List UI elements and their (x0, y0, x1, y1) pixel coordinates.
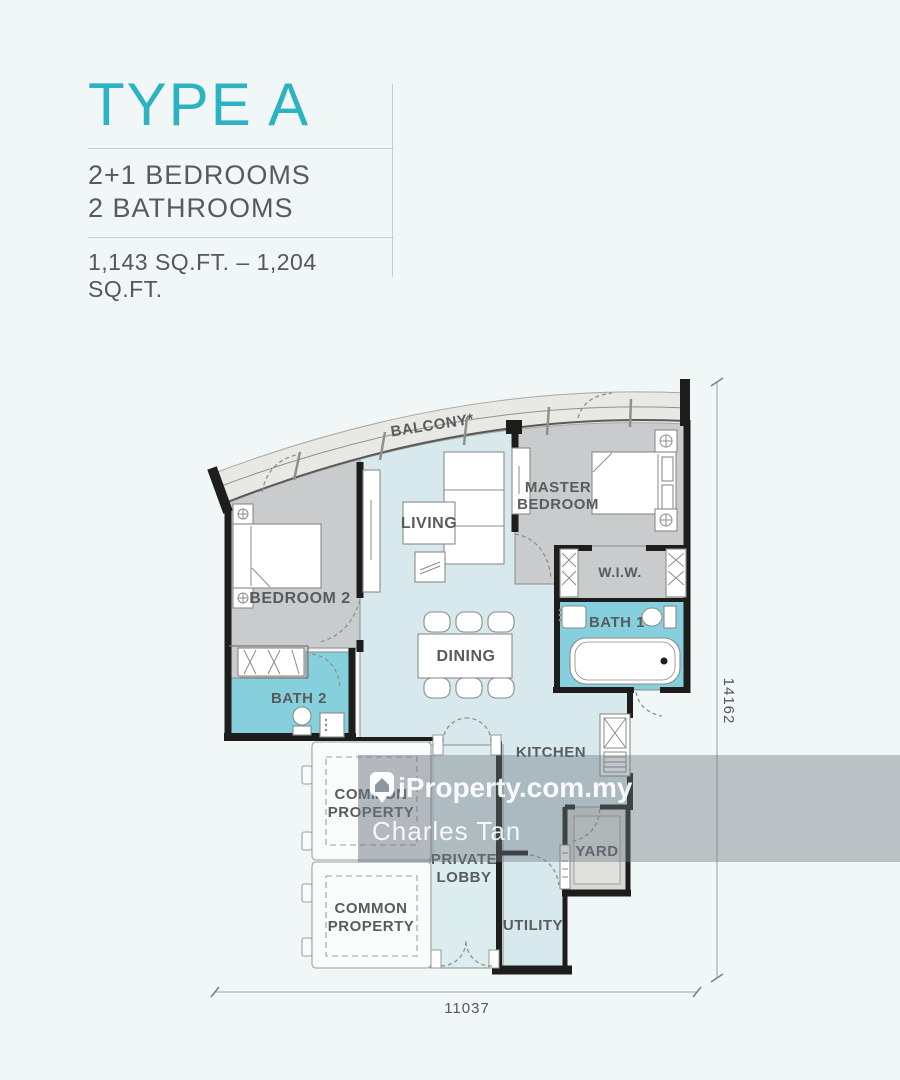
private-lobby-label-2: LOBBY (437, 869, 492, 886)
wiw-label: W.I.W. (598, 564, 641, 580)
living-label: LIVING (401, 515, 457, 532)
bedroom2-label: BEDROOM 2 (249, 590, 350, 607)
common-property-2-label-1: COMMON (335, 900, 408, 917)
utility-label: UTILITY (503, 917, 563, 934)
watermark-brand-text: iProperty.com.my (398, 772, 633, 803)
master-bedroom-label-1: MASTER (525, 479, 591, 496)
master-bedroom-label-2: BEDROOM (517, 496, 599, 513)
watermark: iProperty.com.my Charles Tan (358, 755, 900, 862)
bath2-label: BATH 2 (271, 690, 327, 707)
floorplan-page: { "header": { "title": "TYPE A", "bedroo… (0, 0, 900, 1080)
bath1-label: BATH 1 (589, 614, 645, 631)
height-dimension: 14162 (720, 678, 737, 725)
common-property-2-label-2: PROPERTY (328, 918, 415, 935)
dining-label: DINING (437, 648, 496, 665)
floorplan-canvas: 14162 11037 (0, 0, 900, 1080)
width-dimension: 11037 (444, 1000, 490, 1017)
watermark-agent-text: Charles Tan (372, 816, 521, 846)
